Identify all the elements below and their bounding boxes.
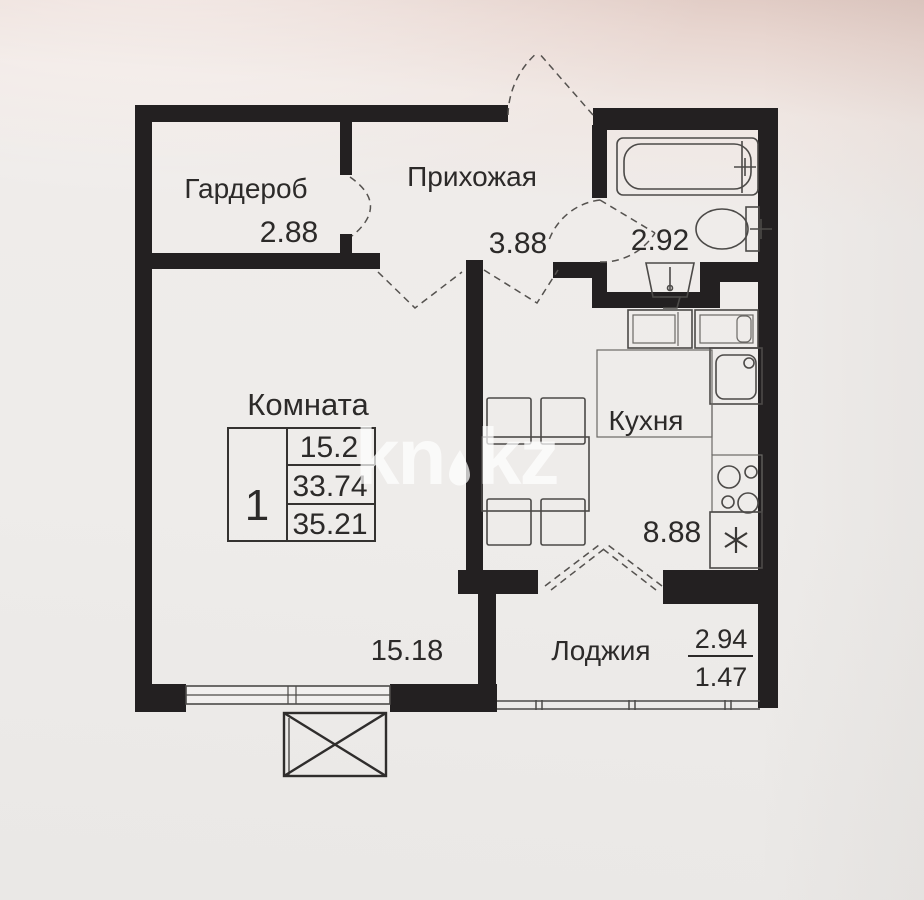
kitchen-label: Кухня xyxy=(609,405,684,436)
wall-bath-bottom-left xyxy=(592,292,710,308)
loggia-area-fraction: 2.94 1.47 xyxy=(688,624,753,692)
bathroom-area: 2.92 xyxy=(631,224,689,257)
watermark-kn-kz: kn kz xyxy=(355,412,558,501)
toilet-icon xyxy=(696,209,748,249)
balcony-cross-box xyxy=(284,713,386,776)
hallway-label: Прихожая xyxy=(407,161,537,192)
wall-top-left xyxy=(135,105,508,122)
wall-bath-left-top xyxy=(592,125,607,198)
floorplan-photo: 1 15.2 33.74 35.21 Гардероб 2.88 Прихожа… xyxy=(0,0,924,900)
loggia-label: Лоджия xyxy=(551,635,650,666)
wall-room-bottom-left xyxy=(135,684,186,712)
entrance-door xyxy=(508,52,593,115)
living-room-label: Комната xyxy=(247,387,369,422)
kitchen-area: 8.88 xyxy=(643,516,701,549)
room-opening-swing xyxy=(378,272,462,308)
door-swings xyxy=(350,52,662,590)
fridge-asterisk xyxy=(725,527,747,553)
bathroom-fixtures xyxy=(617,138,772,308)
living-room-area: 15.18 xyxy=(371,635,444,667)
wall-bath-bottom-right xyxy=(712,262,758,282)
watermark-part1: kn xyxy=(355,412,444,501)
chair xyxy=(487,499,531,545)
kitchen-opening-swing xyxy=(484,270,558,303)
counter-unit-2 xyxy=(695,310,758,348)
floorplan-drawing: 1 15.2 33.74 35.21 Гардероб 2.88 Прихожа… xyxy=(0,0,924,900)
chair xyxy=(541,499,585,545)
wall-left xyxy=(135,105,152,712)
loggia-glazing xyxy=(497,700,760,710)
wall-right xyxy=(758,108,778,708)
watermark-part2: kz xyxy=(477,412,558,501)
wall-loggia-left xyxy=(478,594,496,712)
loggia-french-doors xyxy=(545,545,662,590)
wall-wardrobe-right-top xyxy=(340,122,352,175)
wall-wardrobe-right-stub xyxy=(340,234,352,255)
table-total-area: 35.21 xyxy=(292,508,367,541)
wardrobe-door-arc xyxy=(350,177,371,236)
wardrobe-area: 2.88 xyxy=(260,216,318,249)
loggia-area-total: 2.94 xyxy=(695,624,748,654)
wall-top-right xyxy=(593,108,778,130)
table-living-area: 15.2 xyxy=(300,431,358,464)
counter-unit-1 xyxy=(628,310,692,348)
wardrobe-label: Гардероб xyxy=(184,173,307,204)
wall-kitchen-south-right xyxy=(663,570,760,604)
hallway-area: 3.88 xyxy=(489,227,547,260)
table-rooms-count: 1 xyxy=(245,481,269,530)
wall-below-wardrobe xyxy=(135,253,380,269)
loggia-area-reduced: 1.47 xyxy=(695,662,748,692)
